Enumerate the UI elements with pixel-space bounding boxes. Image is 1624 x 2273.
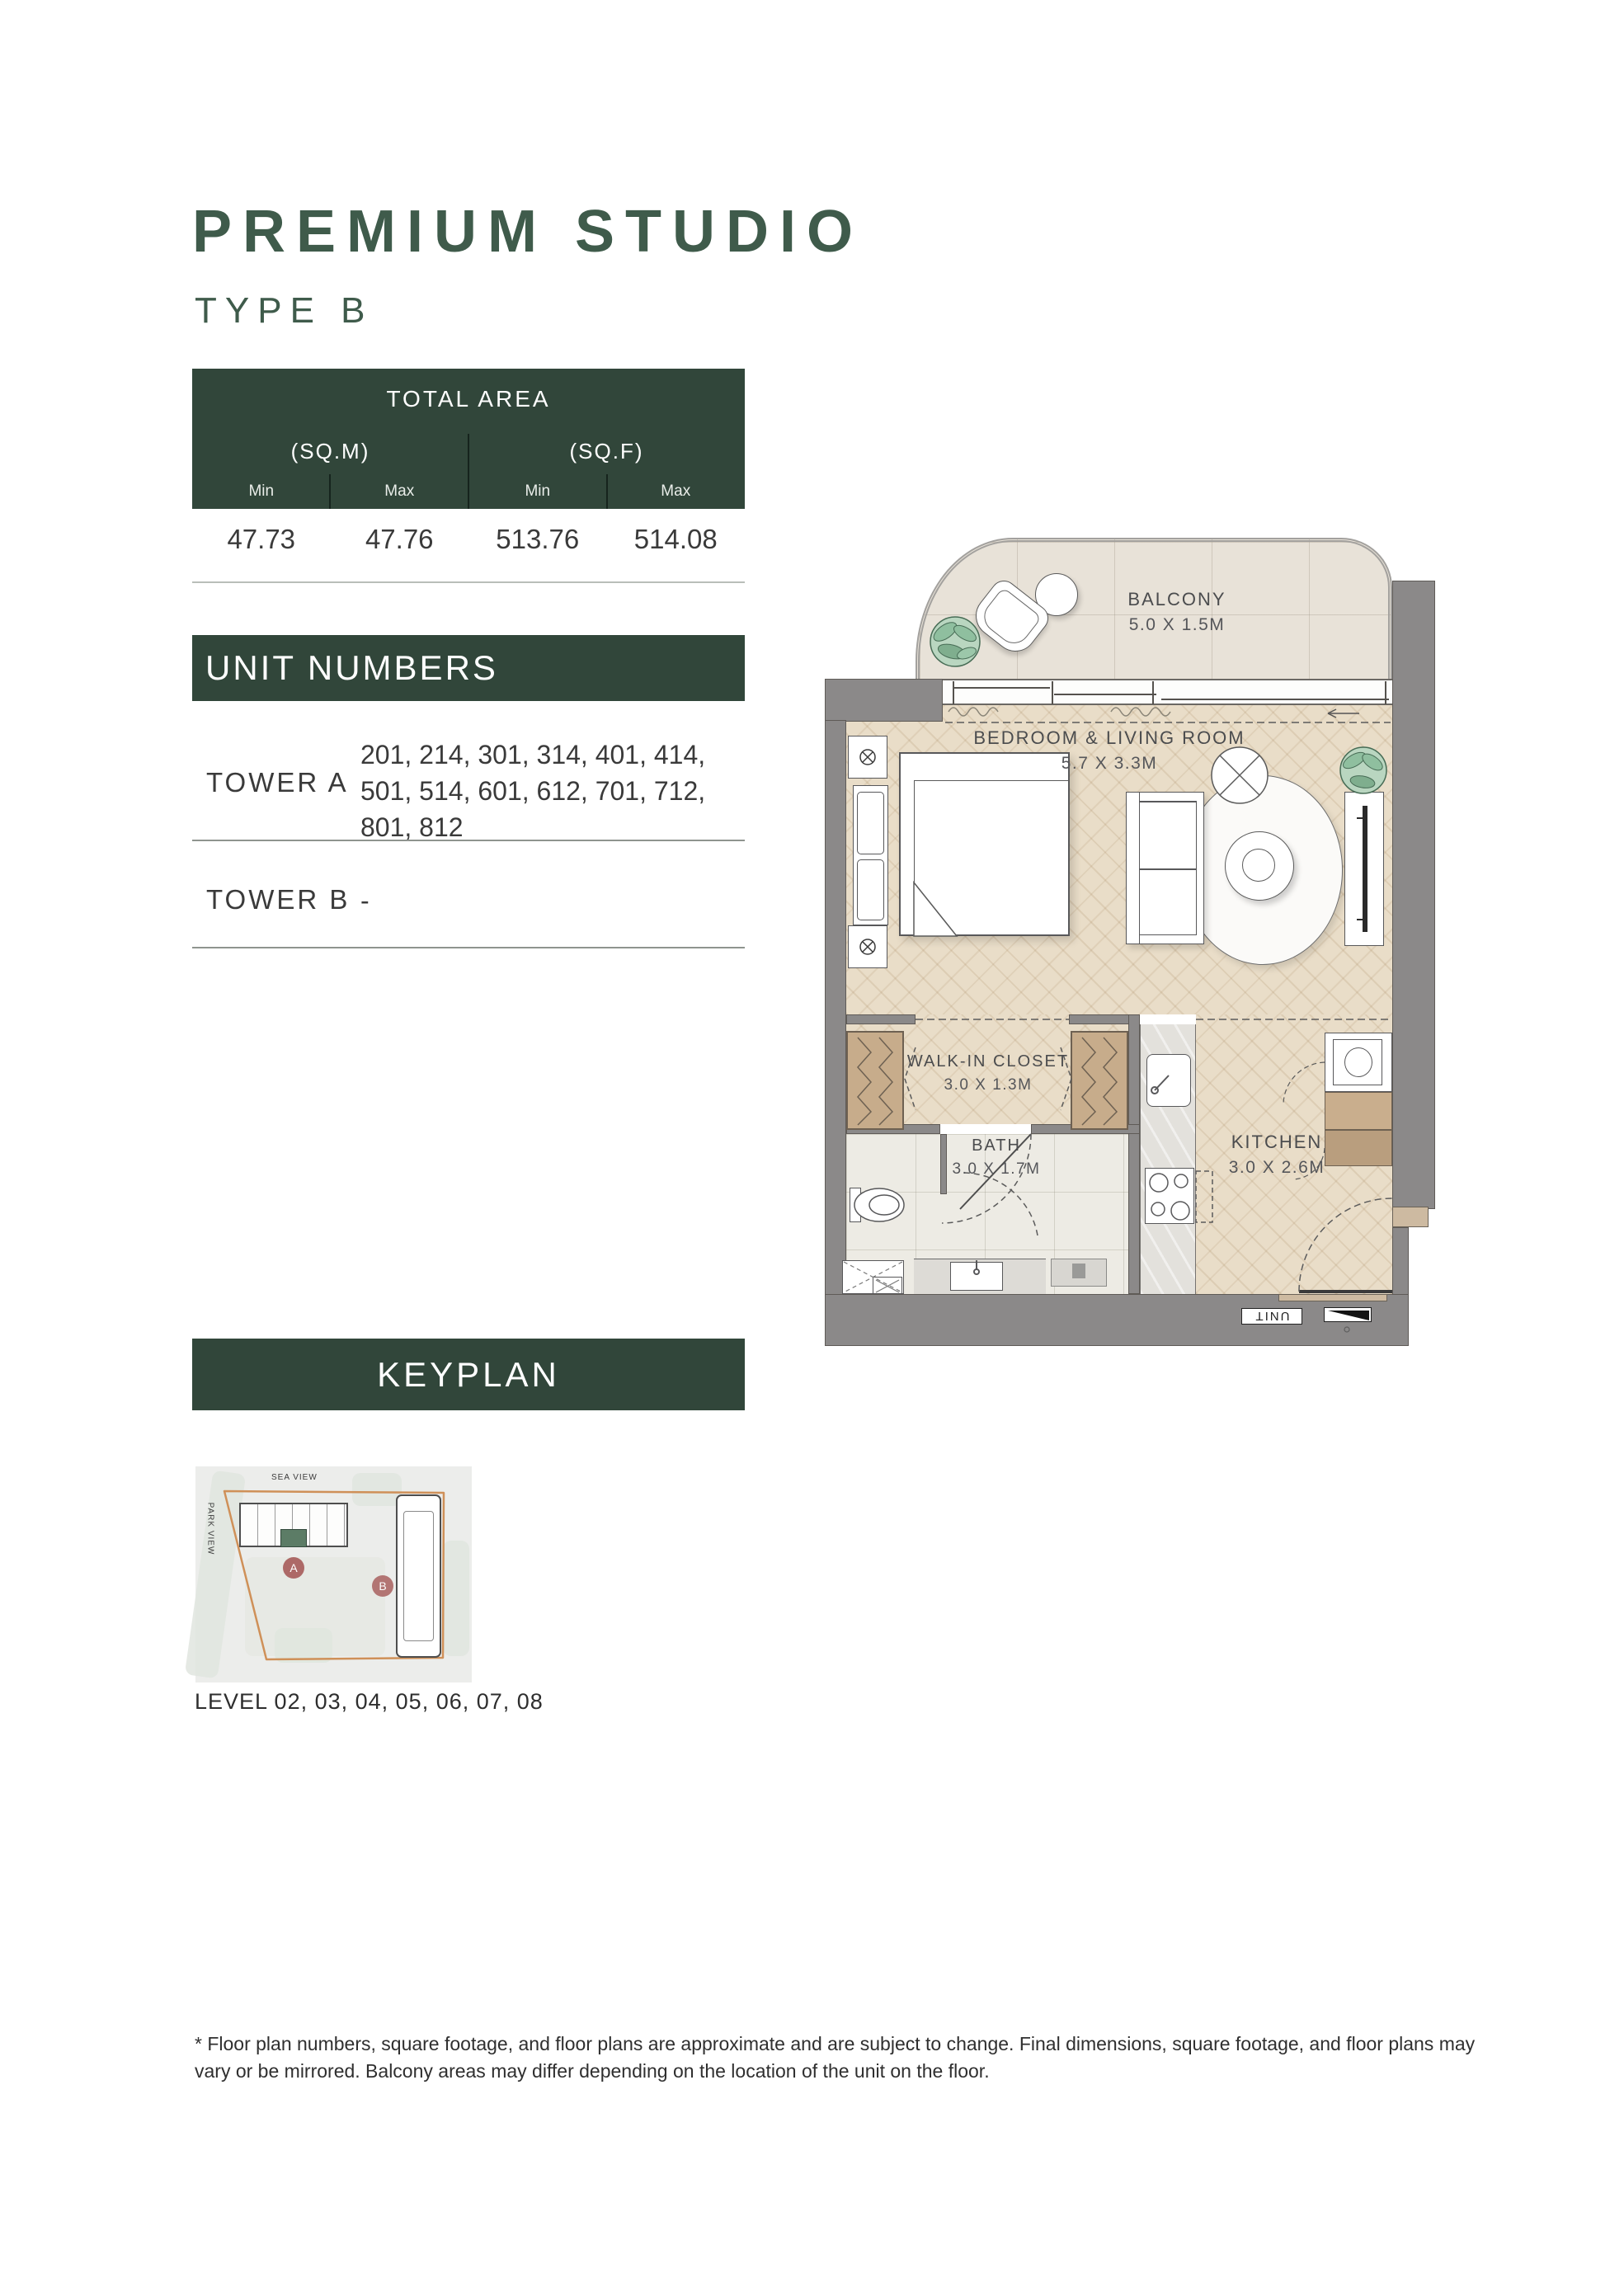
col-min-sqm: Min: [192, 474, 331, 509]
col-max-sqf: Max: [607, 474, 746, 509]
col-max-sqm: Max: [331, 474, 469, 509]
divider: [606, 474, 608, 509]
keyplan-tower-b-footprint: [396, 1494, 441, 1658]
tower-b-units: -: [360, 882, 370, 919]
bath-label: BATH 3.0 X 1.7M: [953, 1136, 1041, 1179]
divider: [192, 581, 745, 583]
floor-plan: UNIT: [825, 520, 1435, 1351]
closet-label: WALK-IN CLOSET 3.0 X 1.3M: [907, 1052, 1069, 1094]
room-dims: 3.0 X 1.3M: [907, 1076, 1069, 1094]
tower-b-badge: B: [372, 1575, 393, 1597]
total-area-values: 47.73 47.76 513.76 514.08: [192, 509, 745, 570]
room-name: KITCHEN: [1229, 1132, 1325, 1153]
room-dims: 3.0 X 2.6M: [1229, 1158, 1325, 1178]
total-area-header: TOTAL AREA: [192, 369, 745, 429]
brochure-page: PREMIUM STUDIO TYPE B TOTAL AREA (SQ.M) …: [0, 0, 1624, 2273]
keyplan-header: KEYPLAN: [192, 1339, 745, 1410]
keyplan-highlighted-unit: [280, 1529, 307, 1547]
plan-linework: [825, 520, 1435, 1351]
room-dims: 5.0 X 1.5M: [1127, 615, 1226, 635]
divider: [468, 434, 469, 474]
divider: [329, 474, 331, 509]
bedroom-label: BEDROOM & LIVING ROOM 5.7 X 3.3M: [973, 727, 1245, 774]
unit-numbers-header: UNIT NUMBERS: [192, 635, 745, 701]
divider: [468, 474, 469, 509]
value-min-sqm: 47.73: [192, 509, 331, 570]
room-name: BATH: [953, 1136, 1041, 1155]
total-area-minmax-row: Min Max Min Max: [192, 474, 745, 509]
sqm-label: (SQ.M): [192, 429, 468, 474]
tower-b-label: TOWER B: [206, 884, 350, 915]
room-name: WALK-IN CLOSET: [907, 1052, 1069, 1071]
total-area-unit-row: (SQ.M) (SQ.F): [192, 429, 745, 474]
kitchen-label: KITCHEN 3.0 X 2.6M: [1229, 1132, 1325, 1178]
divider: [192, 947, 745, 948]
value-max-sqf: 514.08: [607, 509, 746, 570]
footnote: * Floor plan numbers, square footage, an…: [195, 2031, 1498, 2085]
tower-a-label: TOWER A: [206, 767, 349, 798]
col-min-sqf: Min: [468, 474, 607, 509]
sea-view-label: SEA VIEW: [271, 1473, 318, 1482]
total-area-table: TOTAL AREA (SQ.M) (SQ.F) Min Max Min Max…: [192, 369, 745, 570]
value-max-sqm: 47.76: [331, 509, 469, 570]
room-dims: 3.0 X 1.7M: [953, 1160, 1041, 1179]
tower-a-badge: A: [283, 1557, 304, 1579]
keyplan-tower-b-core: [403, 1511, 434, 1641]
divider: [192, 840, 745, 841]
keyplan-map: A B SEA VIEW PARK VIEW: [195, 1466, 472, 1682]
room-name: BALCONY: [1127, 589, 1226, 610]
balcony-label: BALCONY 5.0 X 1.5M: [1127, 589, 1226, 635]
sqf-label: (SQ.F): [468, 429, 745, 474]
tower-a-units: 201, 214, 301, 314, 401, 414, 501, 514, …: [360, 736, 744, 845]
page-title: PREMIUM STUDIO: [192, 198, 864, 266]
page-subtitle: TYPE B: [195, 290, 374, 332]
room-name: BEDROOM & LIVING ROOM: [973, 727, 1245, 749]
room-dims: 5.7 X 3.3M: [973, 754, 1245, 774]
level-text: LEVEL 02, 03, 04, 05, 06, 07, 08: [195, 1689, 544, 1715]
park-view-label: PARK VIEW: [205, 1503, 214, 1555]
value-min-sqf: 513.76: [468, 509, 607, 570]
